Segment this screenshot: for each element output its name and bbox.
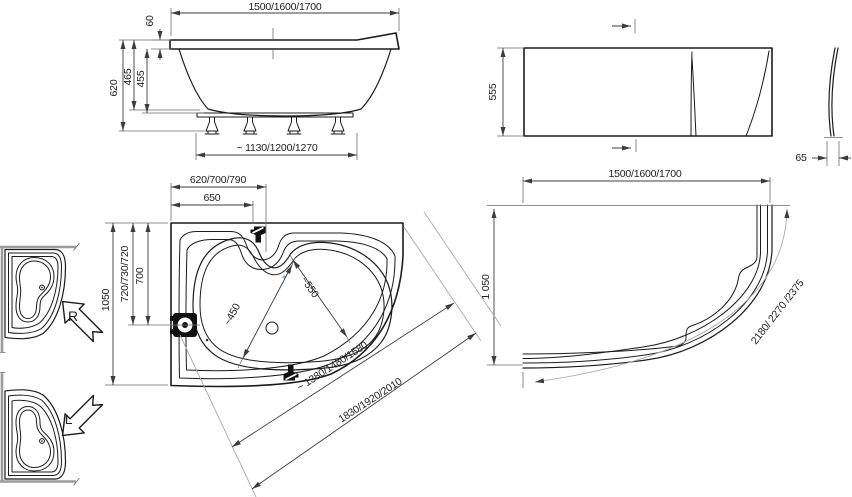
dim-drain-depth-inner: 700 bbox=[134, 267, 146, 284]
left-variant-label: L bbox=[65, 411, 73, 427]
drain-hole bbox=[266, 322, 278, 334]
dim-total-height: 620 bbox=[108, 79, 120, 96]
dim-apron-plan-depth: 1 050 bbox=[480, 274, 492, 300]
left-variant-pictogram bbox=[5, 390, 66, 479]
bath-plan-view: 620/700/790 650 1050 720/730/720 700 ~45… bbox=[100, 174, 501, 497]
bathtub-technical-drawing: 1500/1600/1700 60 620 465 455 ~ 1130/120… bbox=[0, 0, 852, 497]
dim-apron-plan-width: 1500/1600/1700 bbox=[608, 168, 681, 180]
orientation-legend: R L bbox=[0, 243, 108, 486]
dim-diagonal-overall: 1830/1920/2010 bbox=[336, 375, 404, 425]
dim-plan-depth: 1050 bbox=[100, 288, 112, 311]
right-variant-label: R bbox=[68, 308, 78, 324]
apron-plan-view: 1500/1600/1700 1 050 2180/ 2270 /2375 bbox=[480, 168, 807, 388]
faucet-icon bbox=[251, 227, 266, 243]
dim-apron-thickness: 65 bbox=[795, 152, 807, 164]
dim-drain-depth: 720/730/720 bbox=[119, 246, 131, 303]
dim-apron-arc-length: 2180/ 2270 /2375 bbox=[749, 277, 807, 347]
apron-profile-view: 65 bbox=[795, 48, 851, 166]
right-variant-pictogram bbox=[5, 250, 66, 339]
dim-faucet-offset: 650 bbox=[204, 192, 221, 204]
dim-shell-height: 465 bbox=[122, 68, 134, 85]
dim-rim-height: 60 bbox=[144, 15, 156, 27]
dim-foot-span: ~ 1130/1200/1270 bbox=[237, 142, 318, 154]
dim-basin-narrow: ~450 bbox=[222, 301, 243, 327]
technical-drawing-svg: 1500/1600/1700 60 620 465 455 ~ 1130/120… bbox=[0, 0, 852, 497]
dim-corner-width: 620/700/790 bbox=[190, 174, 247, 186]
dim-basin-wide: ~550 bbox=[298, 274, 321, 300]
dim-front-width: 1500/1600/1700 bbox=[248, 1, 321, 13]
left-arrow-icon bbox=[53, 390, 107, 444]
dim-diagonal-inner: ~ 1380/1480/1580 bbox=[295, 339, 370, 394]
apron-front-view: 555 bbox=[487, 19, 772, 152]
dim-apron-height: 555 bbox=[487, 83, 499, 100]
front-elevation-view: 1500/1600/1700 60 620 465 455 ~ 1130/120… bbox=[108, 1, 399, 160]
dim-inner-height: 455 bbox=[135, 70, 147, 87]
